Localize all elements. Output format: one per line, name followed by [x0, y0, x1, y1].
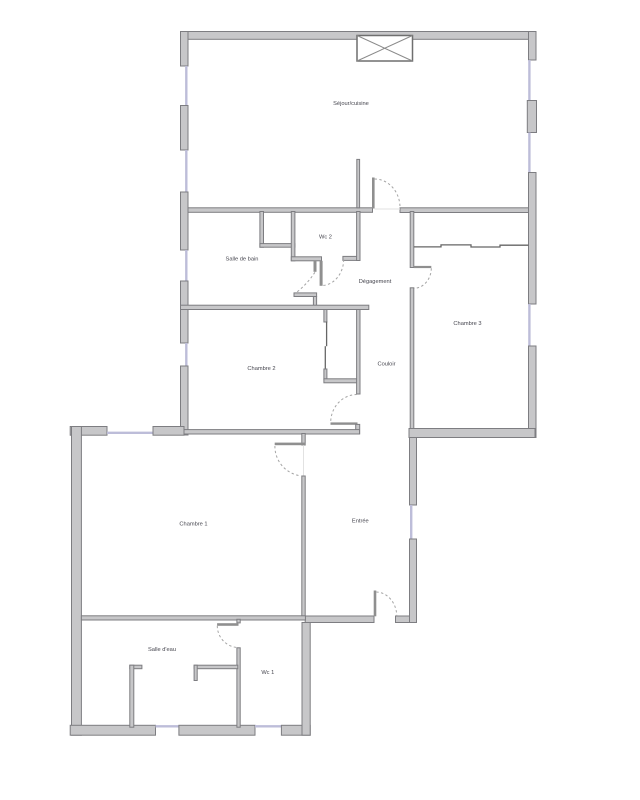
svg-text:Wc 2: Wc 2: [319, 235, 332, 241]
svg-text:Dégagement: Dégagement: [359, 279, 392, 285]
svg-text:Séjour/cuisine: Séjour/cuisine: [333, 101, 369, 107]
svg-text:Chambre 2: Chambre 2: [247, 366, 275, 372]
svg-text:Chambre 3: Chambre 3: [453, 321, 481, 327]
svg-text:Salle de bain: Salle de bain: [226, 256, 259, 262]
svg-text:Entrée: Entrée: [352, 518, 369, 524]
svg-text:Couloir: Couloir: [377, 362, 395, 368]
svg-text:Salle d'eau: Salle d'eau: [148, 647, 176, 653]
svg-text:Wc 1: Wc 1: [261, 670, 274, 676]
svg-text:Chambre 1: Chambre 1: [179, 522, 207, 528]
